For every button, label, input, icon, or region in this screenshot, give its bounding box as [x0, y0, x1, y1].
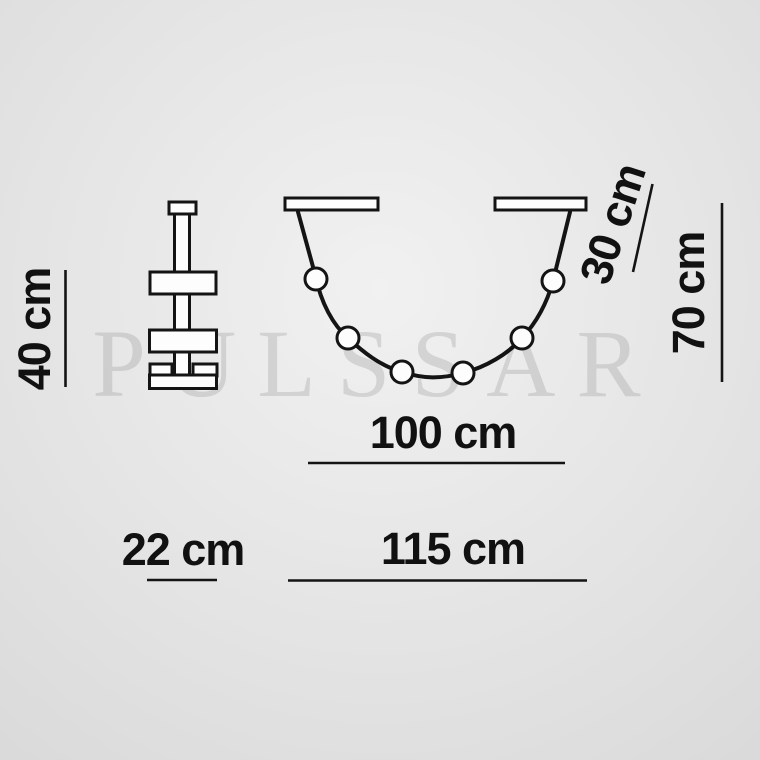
product-dimensions-diagram: PULSSAR: [0, 0, 760, 760]
side-view-fixture: [150, 202, 218, 389]
bulb-1-icon: [305, 268, 327, 290]
dim-label-side-height: 40 cm: [9, 268, 61, 391]
side-view-bottom-bar: [150, 375, 217, 389]
front-view-pendant: [285, 198, 586, 384]
side-view-top-cap: [169, 202, 196, 214]
dim-label-inner-width: 100 cm: [370, 407, 517, 459]
bulb-2-icon: [337, 327, 359, 349]
dim-label-total-width: 115 cm: [381, 523, 525, 575]
dim-label-side-width: 22 cm: [122, 524, 245, 576]
ceiling-canopy-right: [495, 198, 586, 210]
line-art-canvas: [0, 0, 760, 760]
bulb-6-icon: [542, 270, 564, 292]
bulb-3-icon: [391, 361, 413, 383]
ceiling-canopy-left: [285, 198, 378, 210]
bulb-5-icon: [511, 327, 533, 349]
side-view-upper-bar: [150, 272, 216, 294]
pendant-cable: [298, 212, 570, 377]
bulb-4-icon: [452, 362, 474, 384]
dim-label-total-height: 70 cm: [663, 232, 715, 355]
side-view-middle-bar: [150, 330, 217, 352]
